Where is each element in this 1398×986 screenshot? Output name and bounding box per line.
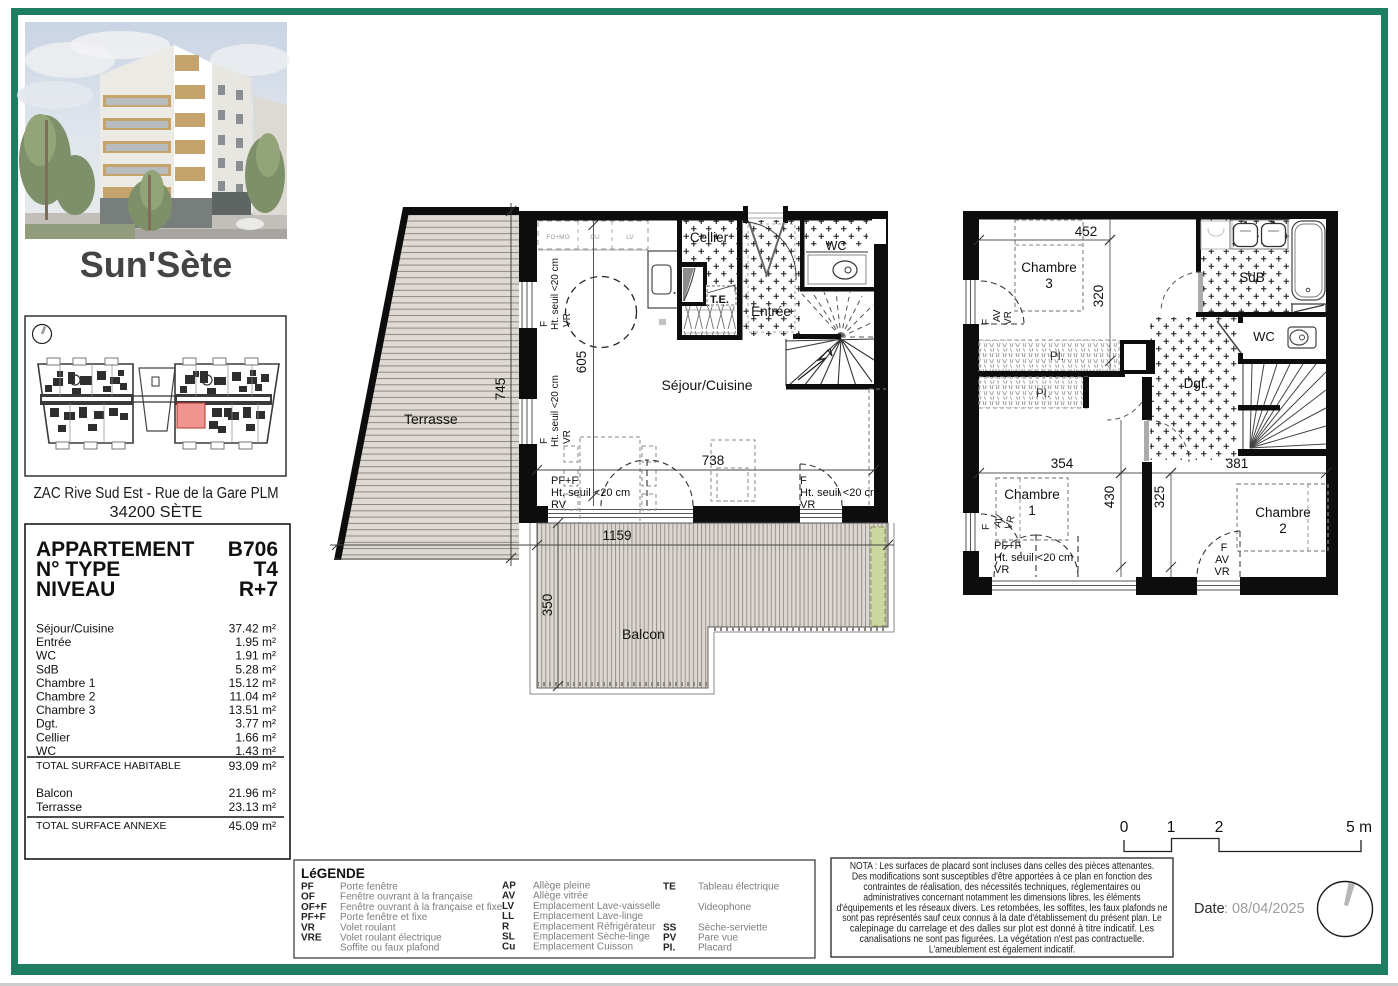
svg-text:Dgt.: Dgt. [1184, 376, 1209, 391]
svg-text:Terrasse: Terrasse [36, 800, 82, 814]
svg-text:Ht. seuil <20 cm: Ht. seuil <20 cm [800, 487, 879, 499]
svg-text:Cellier: Cellier [690, 230, 729, 245]
svg-text:Des modifications sont suscept: Des modifications sont susceptibles d'êt… [852, 872, 1152, 883]
svg-text:381: 381 [1226, 456, 1249, 471]
svg-text:contraintes de réalisation, de: contraintes de réalisation, des nécessit… [863, 882, 1140, 893]
svg-text:Chambre 1: Chambre 1 [36, 676, 96, 690]
svg-text:Cu: Cu [502, 942, 515, 953]
svg-text:Chambre: Chambre [1021, 260, 1077, 275]
svg-text:605: 605 [574, 351, 589, 374]
svg-text:13.51 m²: 13.51 m² [229, 703, 276, 717]
svg-text:2: 2 [1215, 819, 1224, 836]
svg-text:Ht. seuil <20 cm: Ht. seuil <20 cm [551, 487, 630, 499]
svg-text:Chambre 3: Chambre 3 [36, 703, 96, 717]
svg-text:Ht. seuil <20 cm: Ht. seuil <20 cm [550, 375, 561, 447]
svg-text:: 08/04/2025: : 08/04/2025 [1224, 901, 1305, 917]
svg-text:3: 3 [1045, 276, 1053, 291]
svg-text:325: 325 [1152, 486, 1167, 509]
svg-text:1.91 m²: 1.91 m² [235, 649, 276, 663]
svg-text:2: 2 [1279, 521, 1287, 536]
svg-text:1: 1 [1028, 503, 1036, 518]
svg-text:VRE: VRE [301, 933, 322, 944]
svg-text:PI.: PI. [663, 943, 675, 954]
svg-text:WC: WC [1253, 329, 1275, 344]
svg-text:93.09 m²: 93.09 m² [229, 759, 276, 773]
svg-text:NOTA : Les surfaces de placard: NOTA : Les surfaces de placard sont incl… [850, 861, 1154, 872]
svg-text:PF+F: PF+F [551, 475, 578, 487]
svg-text:administratives concernant not: administratives concernant notamment les… [863, 892, 1140, 903]
svg-text:NIVEAU: NIVEAU [36, 578, 115, 601]
svg-text:Tableau électrique: Tableau électrique [698, 882, 780, 893]
svg-text:34200 SÈTE: 34200 SÈTE [110, 504, 203, 521]
svg-text:VR: VR [562, 313, 573, 327]
svg-text:calepinage du carrelage et des: calepinage du carrelage et des dalles su… [850, 924, 1154, 935]
svg-text:LéGENDE: LéGENDE [301, 866, 365, 881]
svg-text:Entrée: Entrée [36, 635, 72, 649]
svg-text:T.E.: T.E. [710, 294, 729, 306]
svg-text:1.66 m²: 1.66 m² [235, 730, 276, 744]
svg-text:Chambre: Chambre [1255, 505, 1311, 520]
svg-text:15.12 m²: 15.12 m² [229, 676, 276, 690]
svg-text:SdB: SdB [1239, 270, 1265, 285]
svg-text:Soffite ou faux plafond: Soffite ou faux plafond [340, 943, 439, 954]
svg-text:AV: AV [992, 309, 1003, 322]
svg-text:Séjour/Cuisine: Séjour/Cuisine [661, 377, 752, 393]
svg-text:37.42 m²: 37.42 m² [229, 622, 276, 636]
svg-text:R+7: R+7 [239, 578, 278, 601]
svg-text:11.04 m²: 11.04 m² [230, 690, 276, 704]
svg-text:452: 452 [1075, 224, 1098, 239]
svg-text:F: F [539, 438, 550, 444]
svg-text:350: 350 [540, 594, 555, 617]
svg-text:0: 0 [1120, 819, 1129, 836]
svg-text:PI.: PI. [1036, 388, 1050, 400]
svg-text:VR: VR [1214, 566, 1229, 578]
svg-text:RV: RV [551, 499, 567, 511]
svg-text:VR: VR [1003, 514, 1017, 530]
svg-text:23.13 m²: 23.13 m² [229, 800, 276, 814]
svg-text:FO+MO: FO+MO [546, 234, 569, 241]
svg-text:Placard: Placard [698, 943, 732, 954]
svg-text:VR: VR [1003, 311, 1014, 325]
svg-text:sont pas représentés sauf ceux: sont pas représentés sauf ceux connus à … [842, 913, 1162, 924]
svg-text:LV: LV [626, 234, 634, 241]
svg-text:L'ameublement est également in: L'ameublement est également indicatif. [929, 945, 1075, 956]
svg-text:canalisations ne sont pas figu: canalisations ne sont pas figurées. La v… [860, 934, 1145, 945]
svg-text:F: F [981, 524, 992, 530]
svg-text:1: 1 [1167, 819, 1176, 836]
svg-text:F: F [981, 319, 992, 325]
svg-text:738: 738 [702, 453, 725, 468]
svg-text:PF+F: PF+F [994, 540, 1021, 552]
svg-text:F: F [539, 321, 550, 327]
svg-text:Ht. seuil <20 cm: Ht. seuil <20 cm [994, 552, 1073, 564]
svg-text:5 m: 5 m [1346, 819, 1372, 836]
svg-text:TE: TE [663, 882, 676, 893]
svg-text:1159: 1159 [602, 528, 631, 543]
svg-text:AV: AV [1215, 554, 1230, 566]
svg-text:Cellier: Cellier [36, 730, 70, 744]
svg-text:Date: Date [1194, 901, 1225, 917]
svg-text:Dgt.: Dgt. [36, 717, 58, 731]
svg-text:TOTAL SURFACE ANNEXE: TOTAL SURFACE ANNEXE [36, 820, 167, 832]
svg-text:45.09 m²: 45.09 m² [229, 819, 276, 833]
svg-text:ZAC Rive Sud Est - Rue de la G: ZAC Rive Sud Est - Rue de la Gare PLM [34, 485, 279, 502]
svg-text:Séjour/Cuisine: Séjour/Cuisine [36, 622, 114, 636]
svg-text:3.77 m²: 3.77 m² [235, 717, 276, 731]
svg-text:TOTAL SURFACE HABITABLE: TOTAL SURFACE HABITABLE [36, 760, 181, 772]
svg-text:Ht. seuil <20 cm: Ht. seuil <20 cm [550, 258, 561, 330]
svg-text:Chambre: Chambre [1004, 487, 1060, 502]
svg-text:F: F [800, 475, 807, 487]
svg-text:Videophone: Videophone [698, 902, 752, 913]
svg-text:VR: VR [994, 564, 1009, 576]
svg-text:WC: WC [36, 744, 56, 758]
svg-text:d'équipements et les réseaux d: d'équipements et les réseaux divers. Les… [836, 903, 1167, 914]
svg-text:745: 745 [493, 378, 508, 401]
svg-text:WC: WC [36, 649, 56, 663]
svg-text:Balcon: Balcon [36, 786, 73, 800]
svg-text:F: F [1221, 542, 1228, 554]
svg-text:VR: VR [562, 430, 573, 444]
svg-text:Balcon: Balcon [622, 626, 665, 642]
svg-text:21.96 m²: 21.96 m² [229, 786, 276, 800]
svg-text:354: 354 [1051, 456, 1074, 471]
svg-text:WC: WC [826, 239, 847, 253]
svg-text:CU: CU [590, 234, 600, 241]
svg-text:1.43 m²: 1.43 m² [235, 744, 276, 758]
svg-text:VR: VR [800, 499, 815, 511]
svg-text:430: 430 [1102, 486, 1117, 509]
svg-text:1.95 m²: 1.95 m² [235, 635, 276, 649]
svg-text:5.28 m²: 5.28 m² [235, 662, 276, 676]
svg-text:320: 320 [1091, 285, 1106, 308]
svg-text:Emplacement Cuisson: Emplacement Cuisson [533, 942, 633, 953]
svg-text:Sun'Sète: Sun'Sète [80, 244, 233, 285]
svg-text:Entrée: Entrée [751, 304, 791, 319]
svg-text:Chambre 2: Chambre 2 [36, 690, 96, 704]
svg-text:Terrasse: Terrasse [404, 411, 458, 427]
svg-text:SdB: SdB [36, 662, 59, 676]
svg-text:PI.: PI. [1050, 351, 1064, 363]
